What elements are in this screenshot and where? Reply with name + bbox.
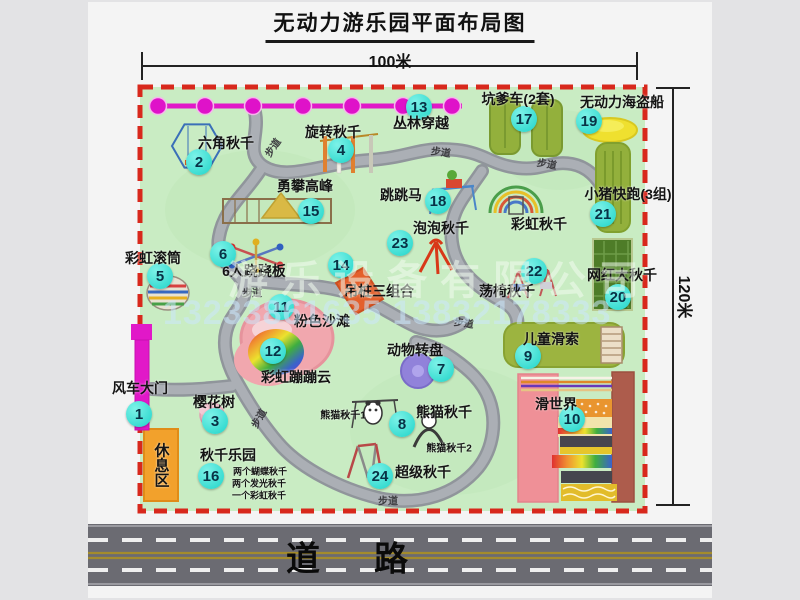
dimension-width-label: 100米 [369,48,412,72]
feature-label-15: 勇攀高峰 [277,176,333,196]
feature-label-5: 彩虹滚筒 [125,248,181,268]
page-title: 无动力游乐园平面布局图 [266,7,535,43]
feature-label-4: 旋转秋千 [305,122,361,142]
marker-14: 14 [328,252,354,278]
road-label: 道 路 [286,532,418,581]
path-label-1: 步道 [260,135,284,160]
marker-8: 8 [389,411,415,437]
feature-label-14: 吊桩三组合 [344,281,414,301]
marker-11: 11 [268,294,294,320]
feature-label-1: 风车大门 [112,378,168,398]
marker-16: 16 [198,463,224,489]
feature-label-3: 樱花树 [193,392,235,412]
feature-label-22: 荡椅秋千 [479,281,535,301]
feature-label-16: 秋千乐园 [200,445,256,465]
marker-18: 18 [425,188,451,214]
path-label-6: 步道 [378,493,398,508]
screenshot-root: 游乐设备有限公司 13233861635 13832178333 1风车大门2六… [0,0,800,600]
feature-label-12: 彩虹蹦蹦云 [261,367,331,387]
path-label-2: 步道 [430,142,452,160]
feature-label-21: 小猪快跑(3组) [584,184,671,204]
path-label-4: 步道 [242,285,262,300]
dimension-height-label: 120米 [674,276,698,319]
extra-label-4: 休息区 [151,443,172,488]
feature-label-20: 网红大秋千 [587,265,657,285]
feature-label-6: 6人跷跷板 [222,261,286,281]
feature-label-8: 熊猫秋千 [416,402,472,422]
marker-15: 15 [298,198,324,224]
marker-21: 21 [590,201,616,227]
feature-label-17: 坑爹车(2套) [481,89,554,109]
marker-17: 17 [511,106,537,132]
feature-label-10: 滑世界 [535,394,577,414]
marker-20: 20 [605,284,631,310]
feature-label-9: 儿童滑索 [523,329,579,349]
path-label-3: 步道 [536,154,558,172]
feature-label-19: 无动力海盗船 [580,92,664,112]
marker-23: 23 [387,230,413,256]
marker-1: 1 [126,401,152,427]
path-label-7: 步道 [247,406,270,431]
marker-24: 24 [367,463,393,489]
marker-12: 12 [260,338,286,364]
extra-label-3: 熊猫秋千2 [426,440,472,455]
feature-label-18: 跳跳马 [380,185,422,205]
extra-label-2: 熊猫秋千1 [320,407,366,422]
feature-label-23: 泡泡秋千 [413,218,469,238]
feature-label-24: 超级秋千 [395,462,451,482]
path-label-5: 步道 [453,313,475,331]
feature-label-11: 粉色沙滩 [294,311,350,331]
feature-label-13: 丛林穿越 [393,113,449,133]
extra-label-1: 彩虹秋千 [511,214,567,234]
extra-label-7: 一个彩虹秋千 [232,489,286,502]
feature-label-7: 动物转盘 [387,340,443,360]
feature-label-2: 六角秋千 [198,133,254,153]
